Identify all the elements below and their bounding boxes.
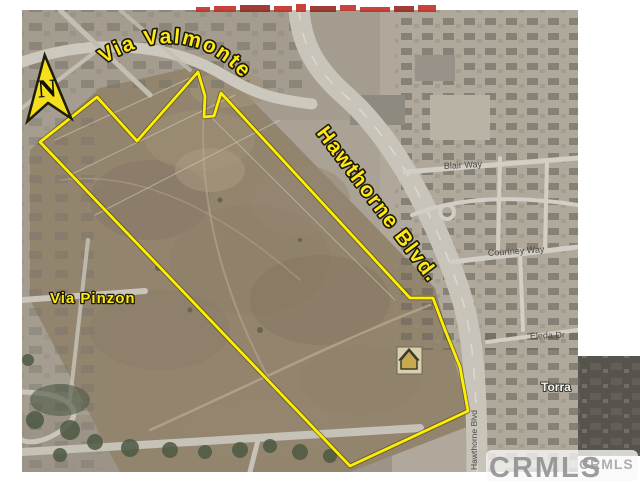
red-banner-text: [196, 4, 436, 12]
base-label-torrance: Torra: [541, 380, 571, 394]
aerial-photo: Blair Way Courtney Way Eleda Dr Hawthorn…: [22, 10, 640, 472]
base-label-eleda-dr: Eleda Dr: [530, 330, 565, 341]
label-via-pinzon: Via Pinzon: [50, 290, 136, 307]
watermark-small: CRMLS: [579, 456, 634, 472]
listing-map-image: Blair Way Courtney Way Eleda Dr Hawthorn…: [0, 0, 640, 482]
base-label-hawthorne-vertical: Hawthorne Blvd: [469, 410, 479, 470]
north-arrow-label: N: [37, 73, 58, 103]
house-icon: [397, 347, 422, 374]
watermark: CRMLS CRMLS: [486, 450, 638, 482]
base-label-blair-way: Blair Way: [444, 159, 483, 171]
